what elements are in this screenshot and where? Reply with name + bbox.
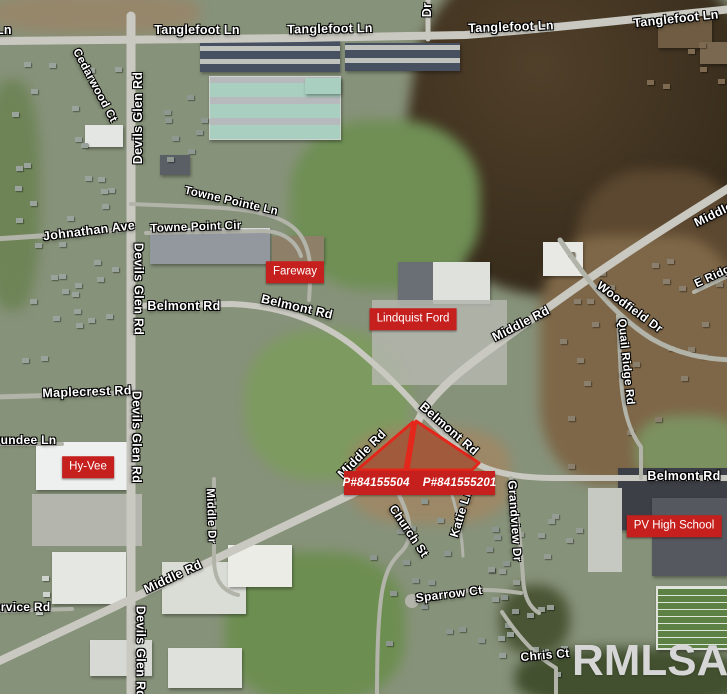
road-label-maplecrest-rd-21: Maplecrest Rd [42, 384, 132, 400]
parcel-number-label-box: P#84155504 P#841555201 [344, 471, 495, 495]
road-label-devils-glen-rd-10: Devils Glen Rd [134, 606, 147, 694]
poi-box-fareway: Fareway [266, 261, 324, 283]
road-label-service-rd-31: Service Rd [0, 601, 51, 613]
parcel-number-east: P#841555201 [423, 477, 497, 489]
poi-box-lindquist-ford: Lindquist Ford [370, 308, 457, 330]
road-label-dr-5: Dr [421, 3, 434, 18]
road-label-dundee-ln-22: Dundee Ln [0, 434, 56, 446]
road-label-devils-glen-rd-9: Devils Glen Rd [130, 391, 143, 483]
poi-box-hy-vee: Hy-Vee [62, 456, 114, 478]
road-label-devils-glen-rd-7: Devils Glen Rd [132, 72, 145, 164]
rmlsa-watermark: RMLSA [572, 639, 727, 683]
road-label-devils-glen-rd-8: Devils Glen Rd [132, 243, 145, 335]
road-label-tanglefoot-ln-3: Tanglefoot Ln [468, 19, 554, 34]
road-label-belmont-rd-14: Belmont Rd [147, 300, 220, 313]
poi-box-pv-high-school: PV High School [627, 515, 722, 537]
road-label-tanglefoot-ln-1: Tanglefoot Ln [154, 24, 240, 37]
aerial-map-canvas: P#84155504 P#841555201 RMLSA Tanglefoot … [0, 0, 727, 694]
road-label-middle-dr-23: Middle Dr [203, 488, 216, 543]
road-label-belmont-rd-33: Belmont Rd [647, 470, 720, 483]
road-label-tanglefoot-ln-0: Tanglefoot Ln [0, 24, 12, 37]
parcel-number-west: P#84155504 [342, 477, 409, 489]
road-label-tanglefoot-ln-2: Tanglefoot Ln [287, 22, 373, 36]
